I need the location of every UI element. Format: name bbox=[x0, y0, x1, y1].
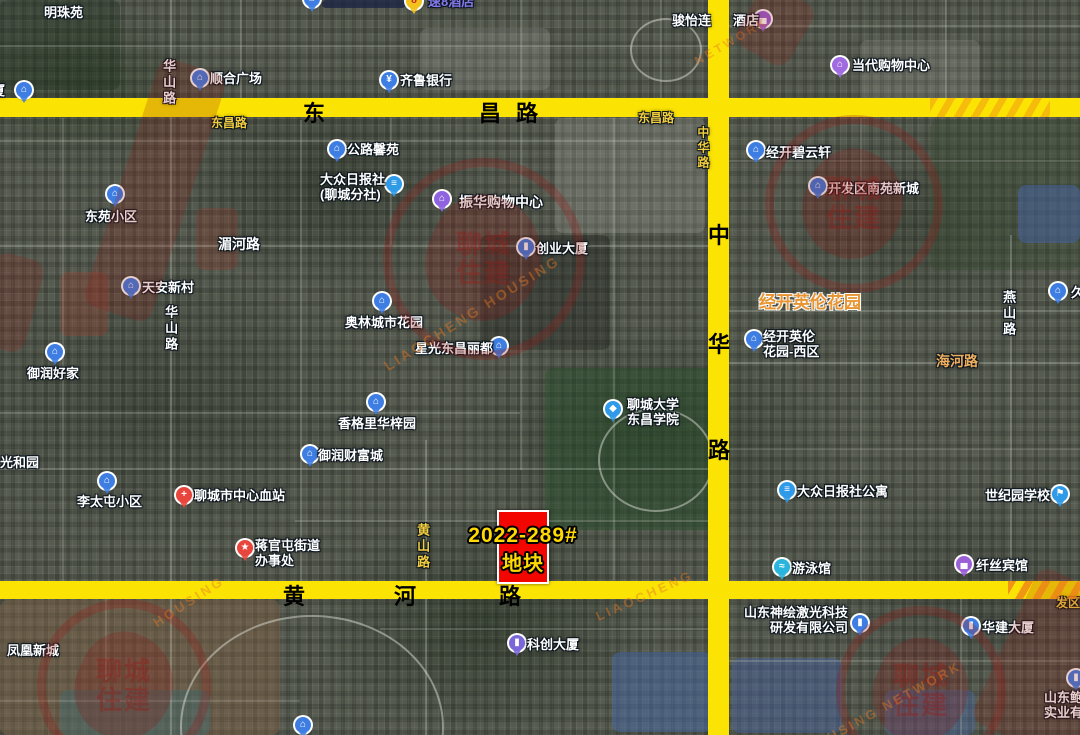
shenhui-jiguang-keji-label[interactable]: 山东神绘激光科技研发有限公司 bbox=[744, 605, 848, 635]
building-icon[interactable]: ⌂ bbox=[123, 278, 139, 294]
yinglun-huayuan-west-label[interactable]: 经开英伦花园-西区 bbox=[763, 329, 819, 359]
road-label-faqu-partial: 发区 bbox=[1056, 597, 1080, 611]
road-band-char: 华 bbox=[703, 327, 735, 359]
road-line bbox=[0, 412, 520, 414]
office-tower-icon[interactable]: ▮ bbox=[509, 635, 525, 651]
watermark-swath bbox=[0, 250, 46, 355]
road-line bbox=[945, 0, 947, 98]
building-icon[interactable]: ⌂ bbox=[1050, 283, 1066, 299]
road-label-huangshan: 黄山路 bbox=[415, 523, 430, 571]
road-label-huashan-2: 华山路 bbox=[163, 305, 178, 353]
road-line bbox=[0, 468, 708, 470]
qilu-bank-label[interactable]: 齐鲁银行 bbox=[400, 73, 452, 88]
junyi-hotel-name-right-label[interactable]: 酒店 bbox=[733, 13, 759, 28]
road-line bbox=[729, 448, 1080, 450]
kaifaqu-nanyuan-xincheng-label[interactable]: 开发区南苑新城 bbox=[828, 181, 919, 196]
road-line bbox=[660, 0, 662, 98]
jiangguantun-jiedao-label[interactable]: 蒋官屯街道办事处 bbox=[255, 538, 320, 568]
yurun-haojia-label[interactable]: 御润好家 bbox=[27, 366, 79, 381]
road-line bbox=[0, 45, 708, 47]
satellite-map[interactable]: 2022-289# 地块 东昌路黄河路中华路东昌路东昌路中华路华山路华山路黄山路… bbox=[0, 0, 1080, 735]
youyongguan-label[interactable]: 游泳馆 bbox=[792, 561, 831, 576]
satellite-patch bbox=[930, 120, 1080, 270]
office-tower-icon[interactable]: ▮ bbox=[1068, 670, 1080, 686]
swimmer-icon[interactable]: ≈ bbox=[774, 559, 790, 575]
watermark-text: HOUSING NETWORK bbox=[802, 658, 964, 735]
dangdai-mall-label[interactable]: 当代购物中心 bbox=[852, 58, 930, 73]
building-icon[interactable]: ⌂ bbox=[746, 331, 762, 347]
gonglu-xinyuan-label[interactable]: 公路馨苑 bbox=[347, 142, 399, 157]
hotel-bed-icon[interactable]: ▄ bbox=[956, 556, 972, 572]
litaitun-xiaoqu-label[interactable]: 李太屯小区 bbox=[77, 494, 142, 509]
aolin-chengshi-huayuan-label[interactable]: 奥林城市花园 bbox=[345, 315, 423, 330]
building-icon[interactable]: ⌂ bbox=[304, 0, 320, 7]
satellite-patch bbox=[322, 0, 406, 8]
mingzhuyuan-label[interactable]: 明珠苑 bbox=[44, 5, 83, 20]
building-icon[interactable]: ⌂ bbox=[47, 344, 63, 360]
road-label-meihe: 湄河路 bbox=[218, 236, 260, 252]
building-icon[interactable]: ⌂ bbox=[107, 186, 123, 202]
office-tower-icon[interactable]: ▮ bbox=[963, 618, 979, 634]
office-tower-icon[interactable]: ▮ bbox=[852, 615, 868, 631]
building-icon[interactable]: ⌂ bbox=[374, 293, 390, 309]
school-flag-icon[interactable]: ⚑ bbox=[1052, 486, 1068, 502]
building-icon[interactable]: ⌂ bbox=[491, 338, 507, 354]
road-line bbox=[729, 362, 1080, 364]
xiansi-binguan-label[interactable]: 纤丝宾馆 bbox=[976, 558, 1028, 573]
road-label-yanshan: 燕山路 bbox=[1001, 290, 1016, 338]
satellite-patch bbox=[612, 652, 712, 732]
satellite-patch bbox=[1018, 185, 1080, 243]
road-label-zhonghua-small: 中华路 bbox=[695, 126, 709, 171]
watermark-emblem: 聊城住建 bbox=[37, 599, 211, 735]
road-band-char: 昌 bbox=[479, 96, 501, 128]
satellite-patch bbox=[545, 368, 713, 530]
road-line bbox=[1010, 235, 1012, 582]
street-office-star-icon[interactable]: ★ bbox=[237, 540, 253, 556]
newspaper-icon[interactable]: ≡ bbox=[386, 176, 402, 192]
liaocheng-univ-dongchang-label[interactable]: 聊城大学东昌学院 bbox=[627, 397, 679, 427]
graduation-cap-icon[interactable]: ◆ bbox=[605, 401, 621, 417]
road-band-char: 东 bbox=[303, 96, 325, 128]
satellite-patch bbox=[0, 600, 280, 735]
road-line bbox=[613, 118, 615, 580]
shunhe-plaza-label[interactable]: 顺合广场 bbox=[210, 71, 262, 86]
road-line bbox=[520, 0, 522, 470]
road-line bbox=[0, 245, 708, 247]
road-label-dongchang-small-1: 东昌路 bbox=[211, 117, 247, 131]
road-band-zhonghua-lu bbox=[708, 0, 729, 735]
road-line bbox=[729, 160, 1080, 162]
road-line bbox=[300, 120, 302, 582]
satellite-patch bbox=[732, 658, 842, 733]
satellite-patch bbox=[885, 690, 975, 735]
super8-icon[interactable]: 8 bbox=[406, 0, 422, 9]
satellite-patch bbox=[555, 118, 705, 233]
building-icon[interactable]: ⌂ bbox=[810, 178, 826, 194]
dazhong-ribaoshe-label[interactable]: 大众日报社(聊城分社) bbox=[320, 172, 385, 202]
watermark-swath bbox=[732, 0, 819, 70]
parcel-label-dikuai: 地块 bbox=[502, 547, 544, 576]
building-icon[interactable]: ⌂ bbox=[368, 394, 384, 410]
road-line bbox=[0, 700, 300, 702]
dongyuan-xiaoqu-label[interactable]: 东苑小区 bbox=[85, 209, 137, 224]
office-tower-icon[interactable]: ▮ bbox=[518, 239, 534, 255]
blood-cross-icon[interactable]: + bbox=[176, 487, 192, 503]
road-band-char: 黄 bbox=[283, 579, 305, 611]
xianggeli-huaziyuan-label[interactable]: 香格里华梓园 bbox=[338, 416, 416, 431]
tianan-xincun-label[interactable]: 天安新村 bbox=[142, 280, 194, 295]
building-icon[interactable]: ⌂ bbox=[748, 142, 764, 158]
building-icon[interactable]: ⌂ bbox=[329, 141, 345, 157]
xingguang-dongchang-lidu-label[interactable]: 星光东昌丽都 bbox=[415, 341, 493, 356]
building-icon[interactable]: ⌂ bbox=[302, 446, 318, 462]
dazhong-ribaoshe-gongyu-label[interactable]: 大众日报社公寓 bbox=[797, 484, 888, 499]
road-band-char: 中 bbox=[703, 218, 735, 250]
ring-road bbox=[180, 615, 444, 735]
road-label-dongchang-small-2: 东昌路 bbox=[638, 112, 674, 126]
liaocheng-xuezhan-label[interactable]: 聊城市中心血站 bbox=[194, 488, 285, 503]
chuangye-daxia-label[interactable]: 创业大厦 bbox=[536, 241, 588, 256]
parcel-label-number: 2022-289# bbox=[468, 524, 577, 548]
yurun-caifucheng-label[interactable]: 御润财富城 bbox=[318, 448, 383, 463]
road-label-haihe: 海河路 bbox=[936, 353, 978, 369]
road-line bbox=[729, 25, 1080, 27]
road-line bbox=[380, 628, 708, 630]
satellite-patch bbox=[60, 690, 210, 735]
huajian-daxia-label[interactable]: 华建大厦 bbox=[982, 620, 1034, 635]
road-band-char: 路 bbox=[516, 96, 538, 128]
road-line bbox=[729, 660, 1080, 662]
jingkai-biyunxuan-label[interactable]: 经开碧云轩 bbox=[766, 145, 831, 160]
su8-hotel-partial-label[interactable]: 速8酒店 bbox=[428, 0, 474, 9]
shandong-bao-partial-label[interactable]: 山东鲍实业有 bbox=[1044, 690, 1080, 720]
newspaper-icon[interactable]: ≡ bbox=[779, 482, 795, 498]
shopping-bag-icon[interactable]: ⌂ bbox=[434, 191, 450, 207]
jingkai-yinglun-huayuan-label[interactable]: 经开英伦花园 bbox=[759, 293, 861, 313]
road-label-huashan-1: 华山路 bbox=[161, 59, 176, 107]
kechuang-daxia-label[interactable]: 科创大厦 bbox=[527, 637, 579, 652]
fenghuang-xincheng-label[interactable]: 凤凰新城 bbox=[7, 643, 59, 658]
building-icon[interactable]: ⌂ bbox=[99, 473, 115, 489]
bank-yuan-icon[interactable]: ¥ bbox=[381, 72, 397, 88]
junyi-hotel-name-left-label[interactable]: 骏怡连 bbox=[672, 13, 711, 28]
building-icon[interactable]: ⌂ bbox=[192, 70, 208, 86]
watermark-emblem: 聊城住建 bbox=[765, 115, 943, 293]
road-band-char: 河 bbox=[394, 579, 416, 611]
shijiyuan-xuexiao-label[interactable]: 世纪园学校 bbox=[985, 488, 1050, 503]
edge-right-partial-label[interactable]: 久 bbox=[1071, 285, 1080, 300]
shopping-bag-icon[interactable]: ⌂ bbox=[832, 57, 848, 73]
edge-left-partial-label[interactable]: 厦 bbox=[0, 83, 5, 98]
guangheyuan-partial-label[interactable]: 光和园 bbox=[0, 455, 39, 470]
road-line bbox=[105, 598, 107, 680]
road-line bbox=[960, 598, 962, 735]
building-icon[interactable]: ⌂ bbox=[16, 82, 32, 98]
road-band-char: 路 bbox=[703, 433, 735, 465]
zhenhua-mall-label[interactable]: 振华购物中心 bbox=[459, 194, 543, 210]
building-icon[interactable]: ⌂ bbox=[295, 717, 311, 733]
satellite-patch bbox=[60, 272, 108, 336]
